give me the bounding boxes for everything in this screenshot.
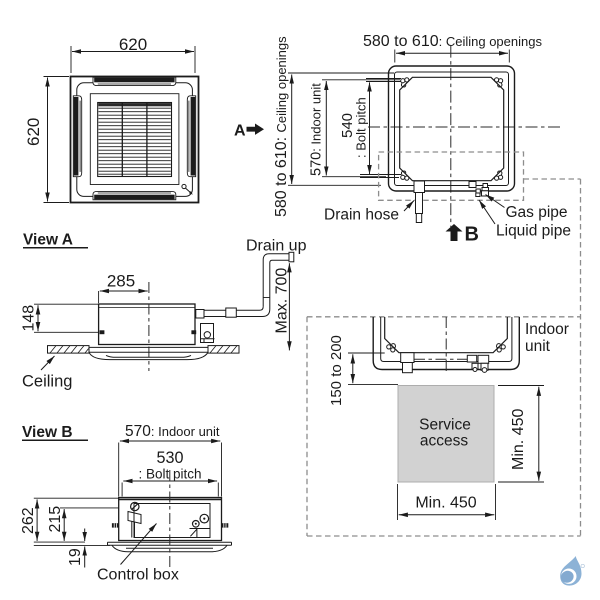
svg-text:View A: View A: [23, 232, 73, 249]
svg-text:Drain hose: Drain hose: [324, 207, 399, 224]
svg-text:530: 530: [156, 449, 183, 467]
svg-text:580 to 610: Ceiling openings: 580 to 610: Ceiling openings: [273, 36, 290, 217]
svg-text:Drain up: Drain up: [246, 238, 307, 255]
svg-text:Ceiling: Ceiling: [22, 373, 72, 391]
svg-text:View B: View B: [22, 424, 73, 441]
svg-text:19: 19: [67, 548, 84, 566]
svg-text:Indoor: Indoor: [525, 321, 569, 338]
svg-text:148: 148: [21, 305, 38, 332]
svg-text:unit: unit: [525, 338, 551, 355]
svg-text:620: 620: [24, 118, 43, 146]
svg-text:Gas pipe: Gas pipe: [506, 204, 568, 221]
svg-text:Max. 700: Max. 700: [274, 268, 291, 334]
svg-text:Control box: Control box: [97, 567, 179, 584]
svg-text:580 to 610: Ceiling openings: 580 to 610: Ceiling openings: [363, 33, 542, 50]
svg-text:262: 262: [20, 507, 37, 534]
svg-text:Liquid pipe: Liquid pipe: [496, 223, 571, 240]
svg-text:570: Indoor unit: 570: Indoor unit: [125, 423, 220, 440]
svg-text:215: 215: [47, 506, 64, 533]
svg-text:Min. 450: Min. 450: [415, 495, 476, 512]
svg-text:570: Indoor unit: 570: Indoor unit: [309, 83, 325, 176]
svg-text:Service: Service: [419, 417, 471, 434]
svg-text:150 to 200: 150 to 200: [328, 335, 345, 406]
svg-text:285: 285: [107, 272, 135, 291]
svg-text:B: B: [465, 224, 479, 246]
svg-text:Min. 450: Min. 450: [510, 409, 527, 470]
svg-text:A: A: [234, 123, 246, 140]
svg-text:: Bolt pitch: : Bolt pitch: [354, 97, 369, 158]
svg-text:access: access: [420, 433, 468, 450]
